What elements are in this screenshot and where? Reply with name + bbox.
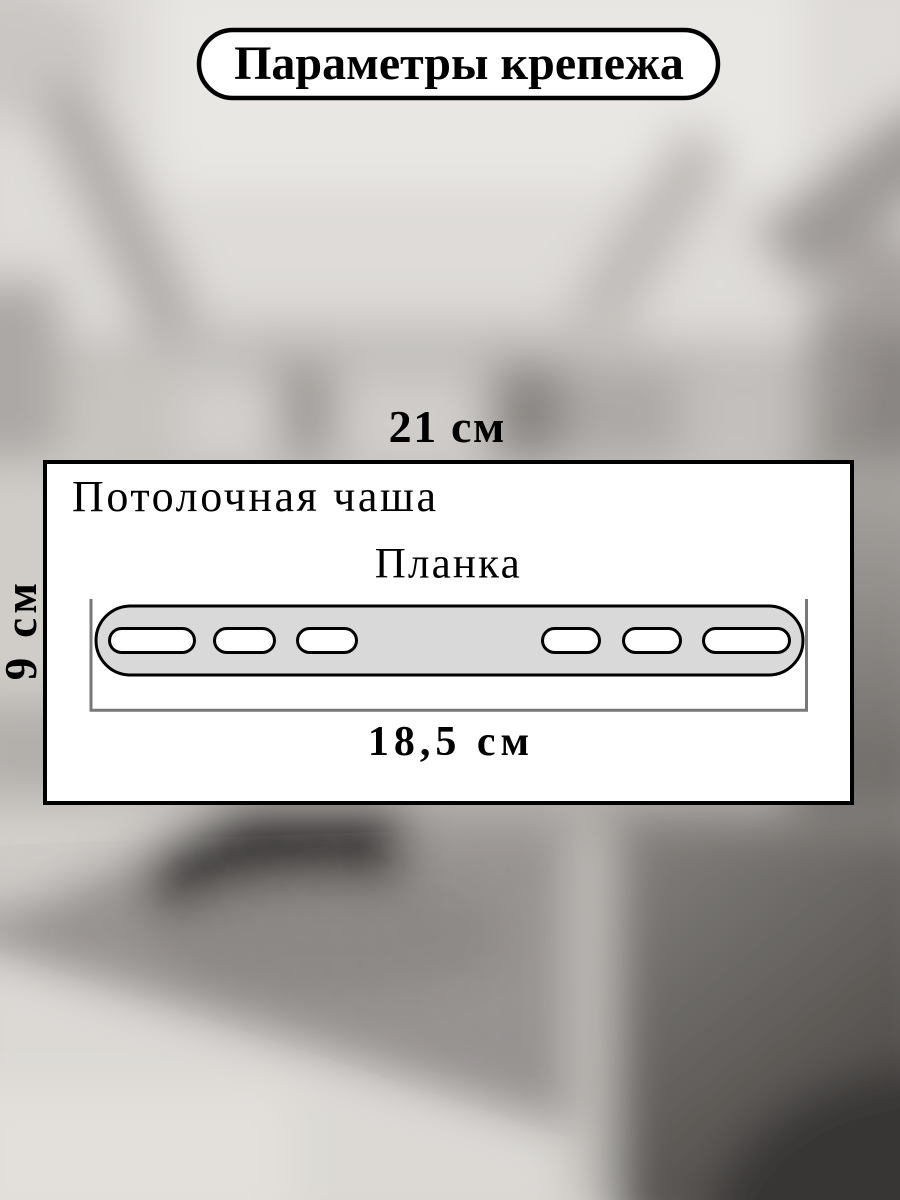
svg-text:9 см: 9 см bbox=[0, 579, 46, 681]
svg-text:21 см: 21 см bbox=[389, 401, 506, 452]
svg-text:Планка: Планка bbox=[375, 541, 522, 588]
svg-text:Потолочная чаша: Потолочная чаша bbox=[72, 472, 439, 521]
svg-text:18,5 см: 18,5 см bbox=[368, 719, 534, 765]
svg-text:Параметры крепежа: Параметры крепежа bbox=[234, 37, 684, 90]
